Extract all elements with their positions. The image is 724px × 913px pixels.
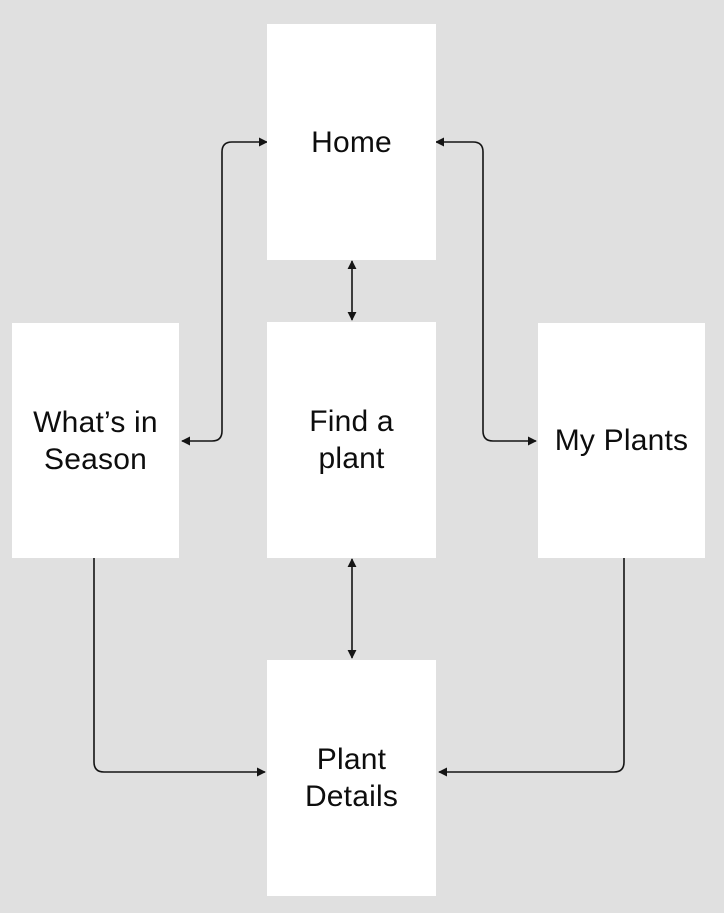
edge-my-plants-to-plant-details: [439, 558, 624, 772]
edge-home-to-whats-in-season: [182, 142, 267, 441]
node-label-my-plants: My Plants: [555, 422, 689, 459]
node-my-plants: My Plants: [538, 323, 705, 558]
edge-whats-in-season-to-plant-details: [94, 558, 265, 772]
node-label-home: Home: [311, 124, 392, 161]
flow-diagram: HomeWhat’s in SeasonFind a plantMy Plant…: [0, 0, 724, 913]
node-find-a-plant: Find a plant: [267, 322, 436, 558]
node-label-whats-in-season: What’s in Season: [33, 404, 158, 478]
node-label-plant-details: Plant Details: [305, 741, 398, 815]
edge-home-to-my-plants: [436, 142, 536, 441]
node-whats-in-season: What’s in Season: [12, 323, 179, 558]
node-plant-details: Plant Details: [267, 660, 436, 896]
node-home: Home: [267, 24, 436, 260]
node-label-find-a-plant: Find a plant: [309, 403, 394, 477]
